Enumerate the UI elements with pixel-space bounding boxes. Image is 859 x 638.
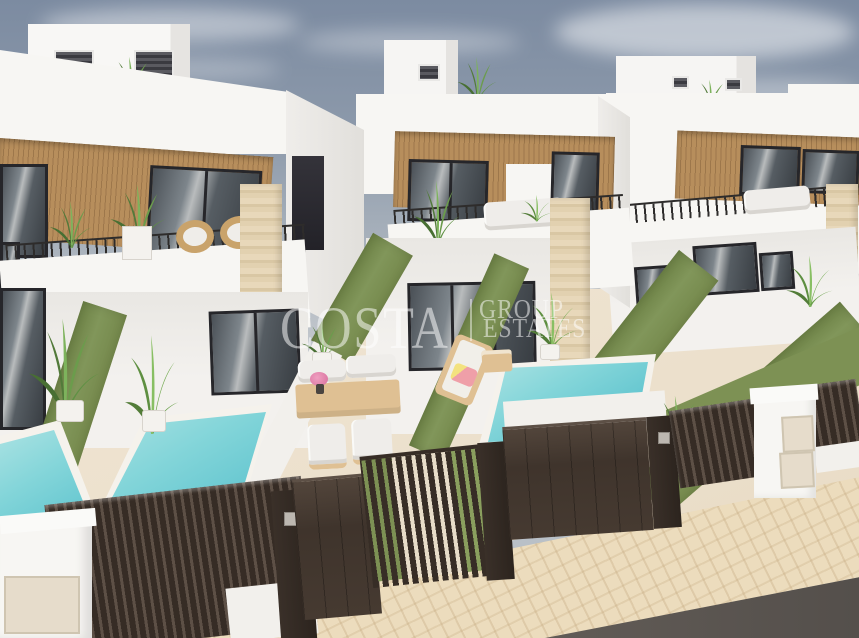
dining-table bbox=[295, 379, 401, 418]
villa-2-driveway-gate bbox=[502, 417, 654, 540]
villa-1-travertine-pillar bbox=[240, 184, 282, 302]
meter-door bbox=[779, 451, 815, 489]
villa-1-balcony-plant bbox=[48, 198, 94, 250]
gate-keypad bbox=[658, 432, 670, 444]
villa-2-roof-vent bbox=[418, 64, 440, 81]
villa-2-palm-pot bbox=[540, 344, 560, 360]
dining-chair bbox=[307, 423, 347, 470]
villa-2-balcony-plant bbox=[518, 192, 554, 222]
terrace-plant-pot bbox=[56, 400, 84, 422]
villa-3-palm bbox=[782, 250, 836, 308]
architectural-render: COSTA GROUP ESTATES bbox=[0, 0, 859, 638]
watermark-brand: COSTA bbox=[280, 298, 450, 358]
villa-3-roof-vent bbox=[672, 76, 689, 89]
meter-door bbox=[781, 415, 815, 453]
cloud bbox=[555, 4, 855, 60]
villa-1-balcony-planter bbox=[122, 226, 152, 260]
pedestrian-slatted-gate bbox=[359, 444, 496, 588]
terrace-plant-pot bbox=[142, 410, 166, 432]
watermark-word-estates: ESTATES bbox=[483, 319, 586, 338]
flower-vase bbox=[316, 384, 324, 394]
utility-cabinet-door bbox=[4, 576, 80, 634]
watermark-divider bbox=[470, 299, 472, 341]
lounger-side-table bbox=[481, 349, 512, 373]
